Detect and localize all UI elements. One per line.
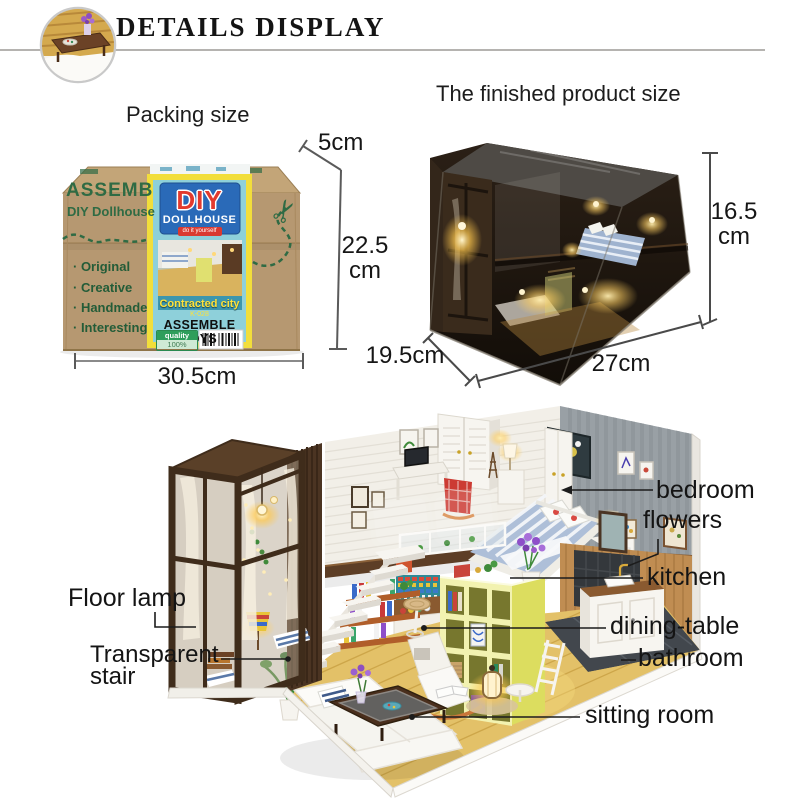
label-logo-sub-text: DOLLHOUSE <box>147 214 252 226</box>
callout-sitting-room: sitting room <box>585 702 714 728</box>
packing-depth-dim: 5cm <box>318 130 363 155</box>
finished-height-dim: 16.5 cm <box>703 199 765 249</box>
finished-height-value: 16.5 <box>703 199 765 224</box>
box-feature-interesting: · Interesting <box>73 320 147 335</box>
packing-height-value: 22.5 <box>336 233 394 258</box>
finished-size-title: The finished product size <box>436 82 681 105</box>
label-product-name: Contracted city <box>147 298 252 310</box>
callout-flowers: flowers <box>643 507 722 533</box>
callout-bathroom: bathroom <box>638 645 744 671</box>
callout-bedroom: bedroom <box>656 477 755 503</box>
box-subtitle-text: DIY Dollhouse <box>67 204 155 219</box>
finished-product-illustration <box>430 143 690 385</box>
callout-floor-lamp: Floor lamp <box>68 585 186 611</box>
finished-depth-dim: 19.5cm <box>355 343 455 368</box>
packing-width-dim: 30.5cm <box>147 364 247 389</box>
quality-label: quality <box>157 331 197 340</box>
quality-badge: quality 100% <box>156 330 198 351</box>
finished-height-unit: cm <box>703 224 765 249</box>
callout-dining-table: dining-table <box>610 613 739 639</box>
quality-value: 100% <box>157 340 197 349</box>
callout-transparent-stair: Transparent stair <box>90 644 248 688</box>
packing-height-dim: 22.5 cm <box>336 233 394 283</box>
box-brand-text: ASSEMB <box>66 180 153 202</box>
label-logo-text: DIY <box>147 185 252 216</box>
packing-size-title: Packing size <box>126 103 250 126</box>
page-title: DETAILS DISPLAY <box>116 13 385 41</box>
label-sku: K-028 <box>147 311 252 318</box>
callout-kitchen: kitchen <box>647 564 726 590</box>
product-detail-page: ✂ <box>0 0 800 800</box>
finished-width-dim: 27cm <box>571 351 671 376</box>
box-feature-creative: · Creative <box>73 280 132 295</box>
box-label: DIY DOLLHOUSE do it yourself Contracted … <box>147 164 252 350</box>
box-feature-handmade: · Handmade <box>73 300 147 315</box>
packing-height-unit: cm <box>336 258 394 283</box>
label-tagline-text: do it yourself <box>147 228 252 234</box>
product-thumbnail <box>40 7 116 82</box>
box-feature-original: · Original <box>73 259 130 274</box>
dollhouse-scene-illustration <box>155 400 702 797</box>
